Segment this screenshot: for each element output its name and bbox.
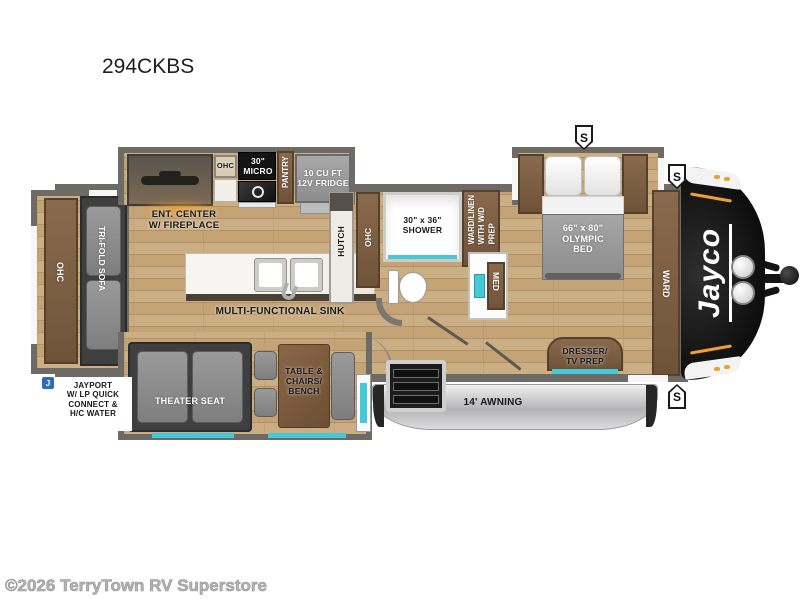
watermark: ©2026 TerryTown RV Superstore <box>5 576 267 596</box>
microwave: 30" MICRO <box>238 152 276 180</box>
dinette-label: TABLE & CHAIRS/ BENCH <box>272 366 336 396</box>
pillow <box>584 156 621 196</box>
kitchen-counter <box>214 179 237 202</box>
pantry: PANTRY <box>277 151 294 204</box>
entry-door-glass <box>360 383 367 423</box>
theater-cushion <box>137 351 188 423</box>
jayport-label: JAYPORT W/ LP QUICK CONNECT & H/C WATER <box>56 381 130 419</box>
entertainment-center <box>127 154 213 206</box>
theater-seat-label: THEATER SEAT <box>130 396 250 407</box>
step <box>393 395 439 404</box>
marker-light <box>714 175 720 179</box>
rear-ohc-cabinet: OHC <box>44 198 78 364</box>
slide-window <box>268 433 346 438</box>
rear-ohc-label: OHC <box>55 262 65 282</box>
sink-basin <box>259 263 282 287</box>
hutch-label: HUTCH <box>336 226 346 257</box>
theater-seat: THEATER SEAT <box>128 342 252 432</box>
tri-fold-sofa-label: TRI-FOLD SOFA <box>97 226 107 291</box>
kitchen-ohc: OHC <box>214 155 237 178</box>
ent-center-label: ENT. CENTER W/ FIREPLACE <box>126 209 242 231</box>
step <box>393 382 439 391</box>
entry-door <box>356 374 371 432</box>
kitchen-ohc-label: OHC <box>216 162 235 171</box>
hutch-top <box>330 193 353 211</box>
jayport-callout: JAYPORT W/ LP QUICK CONNECT & H/C WATER <box>54 377 132 431</box>
shower: 30" x 36" SHOWER <box>383 192 462 262</box>
bed-sheet <box>542 196 624 216</box>
nightstand-right <box>622 154 648 214</box>
awning-endcap <box>646 385 657 427</box>
propane-tank <box>731 281 755 305</box>
ward-cabinet: WARD <box>652 190 680 376</box>
shower-threshold <box>388 255 457 259</box>
bed-foot <box>545 273 621 279</box>
cooktop <box>238 181 276 202</box>
tv <box>141 176 199 185</box>
hutch-ohc: OHC <box>356 192 380 288</box>
floorplan-page: 294CKBS OHC TRI-FOLD SOFA ENT. CENTER W/… <box>0 0 800 600</box>
propane-tank <box>731 255 755 279</box>
marker-light <box>714 367 720 371</box>
floorplan-title: 294CKBS <box>102 55 194 79</box>
shower-label: 30" x 36" SHOWER <box>386 215 459 235</box>
rear-window <box>31 226 37 344</box>
vanity: MED <box>468 252 508 320</box>
jayport-icon: J <box>42 377 54 389</box>
pantry-label: PANTRY <box>281 156 290 188</box>
pillow <box>545 156 582 196</box>
speaker-icon: S <box>668 164 686 189</box>
dresser-label: DRESSER/ TV PREP <box>549 346 621 366</box>
ward-linen-label: WARD/LINEN WITH W/D PREP <box>467 195 497 244</box>
tv-stand <box>159 171 181 177</box>
speaker-icon: S <box>575 125 593 150</box>
microwave-label: 30" MICRO <box>239 156 277 176</box>
bedroom-window <box>628 375 668 382</box>
speaker-icon: S <box>668 384 686 409</box>
nightstand-left <box>518 154 544 214</box>
dresser-tv-line <box>552 369 618 374</box>
sink-label: MULTI-FUNCTIONAL SINK <box>175 306 385 318</box>
hutch: HUTCH <box>329 192 354 304</box>
awning-endcap <box>373 385 384 427</box>
bed-label: 66" x 80" OLYMPIC BED <box>543 223 623 255</box>
marker-light <box>724 365 730 369</box>
range-front <box>238 202 276 208</box>
hutch-ohc-label: OHC <box>363 228 373 247</box>
burner-icon <box>252 186 264 198</box>
theater-cushion <box>192 351 243 423</box>
entry-steps <box>386 360 446 412</box>
med-cabinet: MED <box>487 262 505 310</box>
vanity-sink <box>474 274 485 298</box>
ward-label: WARD <box>661 270 671 298</box>
step <box>393 369 439 378</box>
marker-light <box>724 177 730 181</box>
fridge-label: 10 CU FT 12V FRIDGE <box>297 168 349 188</box>
dresser: DRESSER/ TV PREP <box>547 337 623 371</box>
jayco-logo-text: Jayco <box>693 224 732 322</box>
med-label: MED <box>491 272 501 291</box>
sink-basin <box>295 263 318 287</box>
bed-duvet: 66" x 80" OLYMPIC BED <box>542 214 624 280</box>
hitch-ball <box>780 266 799 285</box>
slide-window <box>152 433 234 438</box>
